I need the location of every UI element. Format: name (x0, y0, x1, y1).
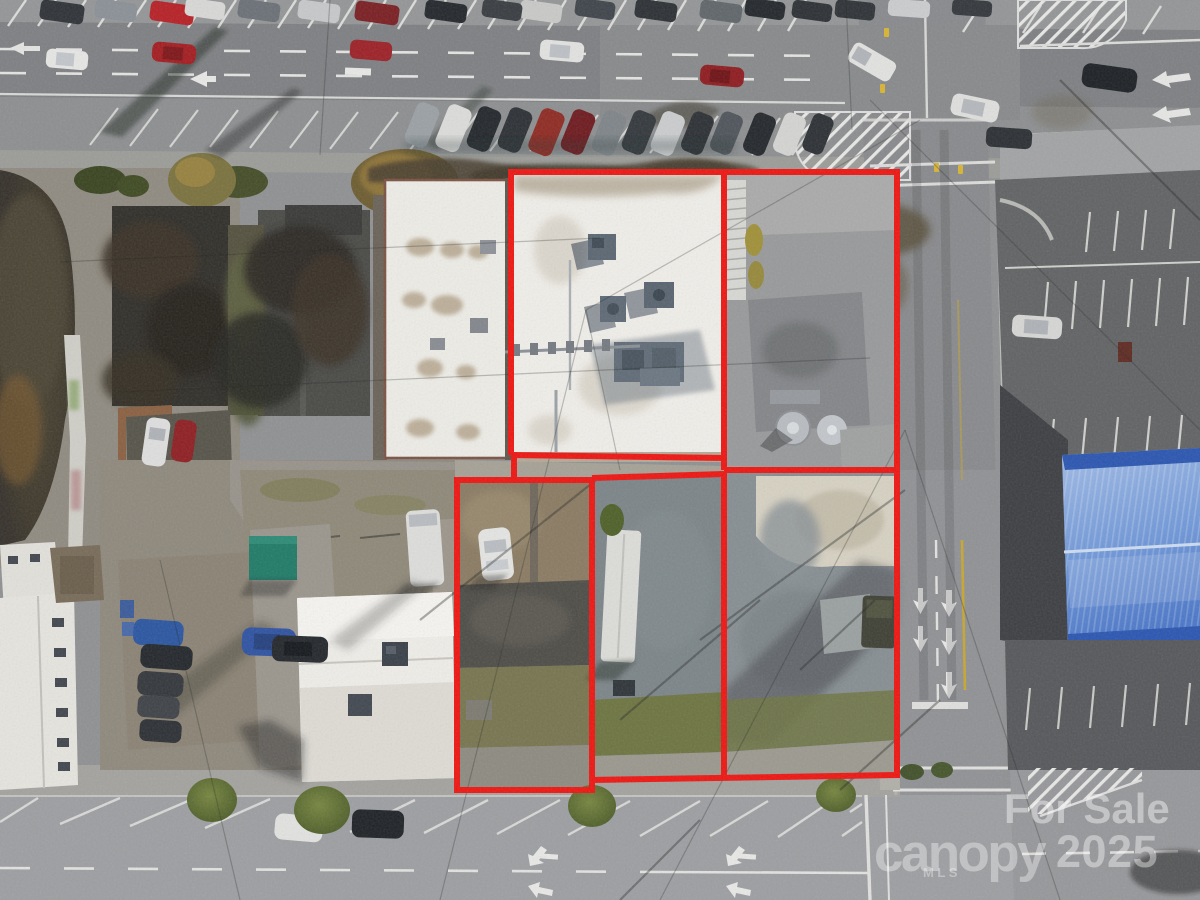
svg-text:2025: 2025 (1056, 826, 1158, 877)
svg-text:MLS: MLS (923, 865, 961, 880)
